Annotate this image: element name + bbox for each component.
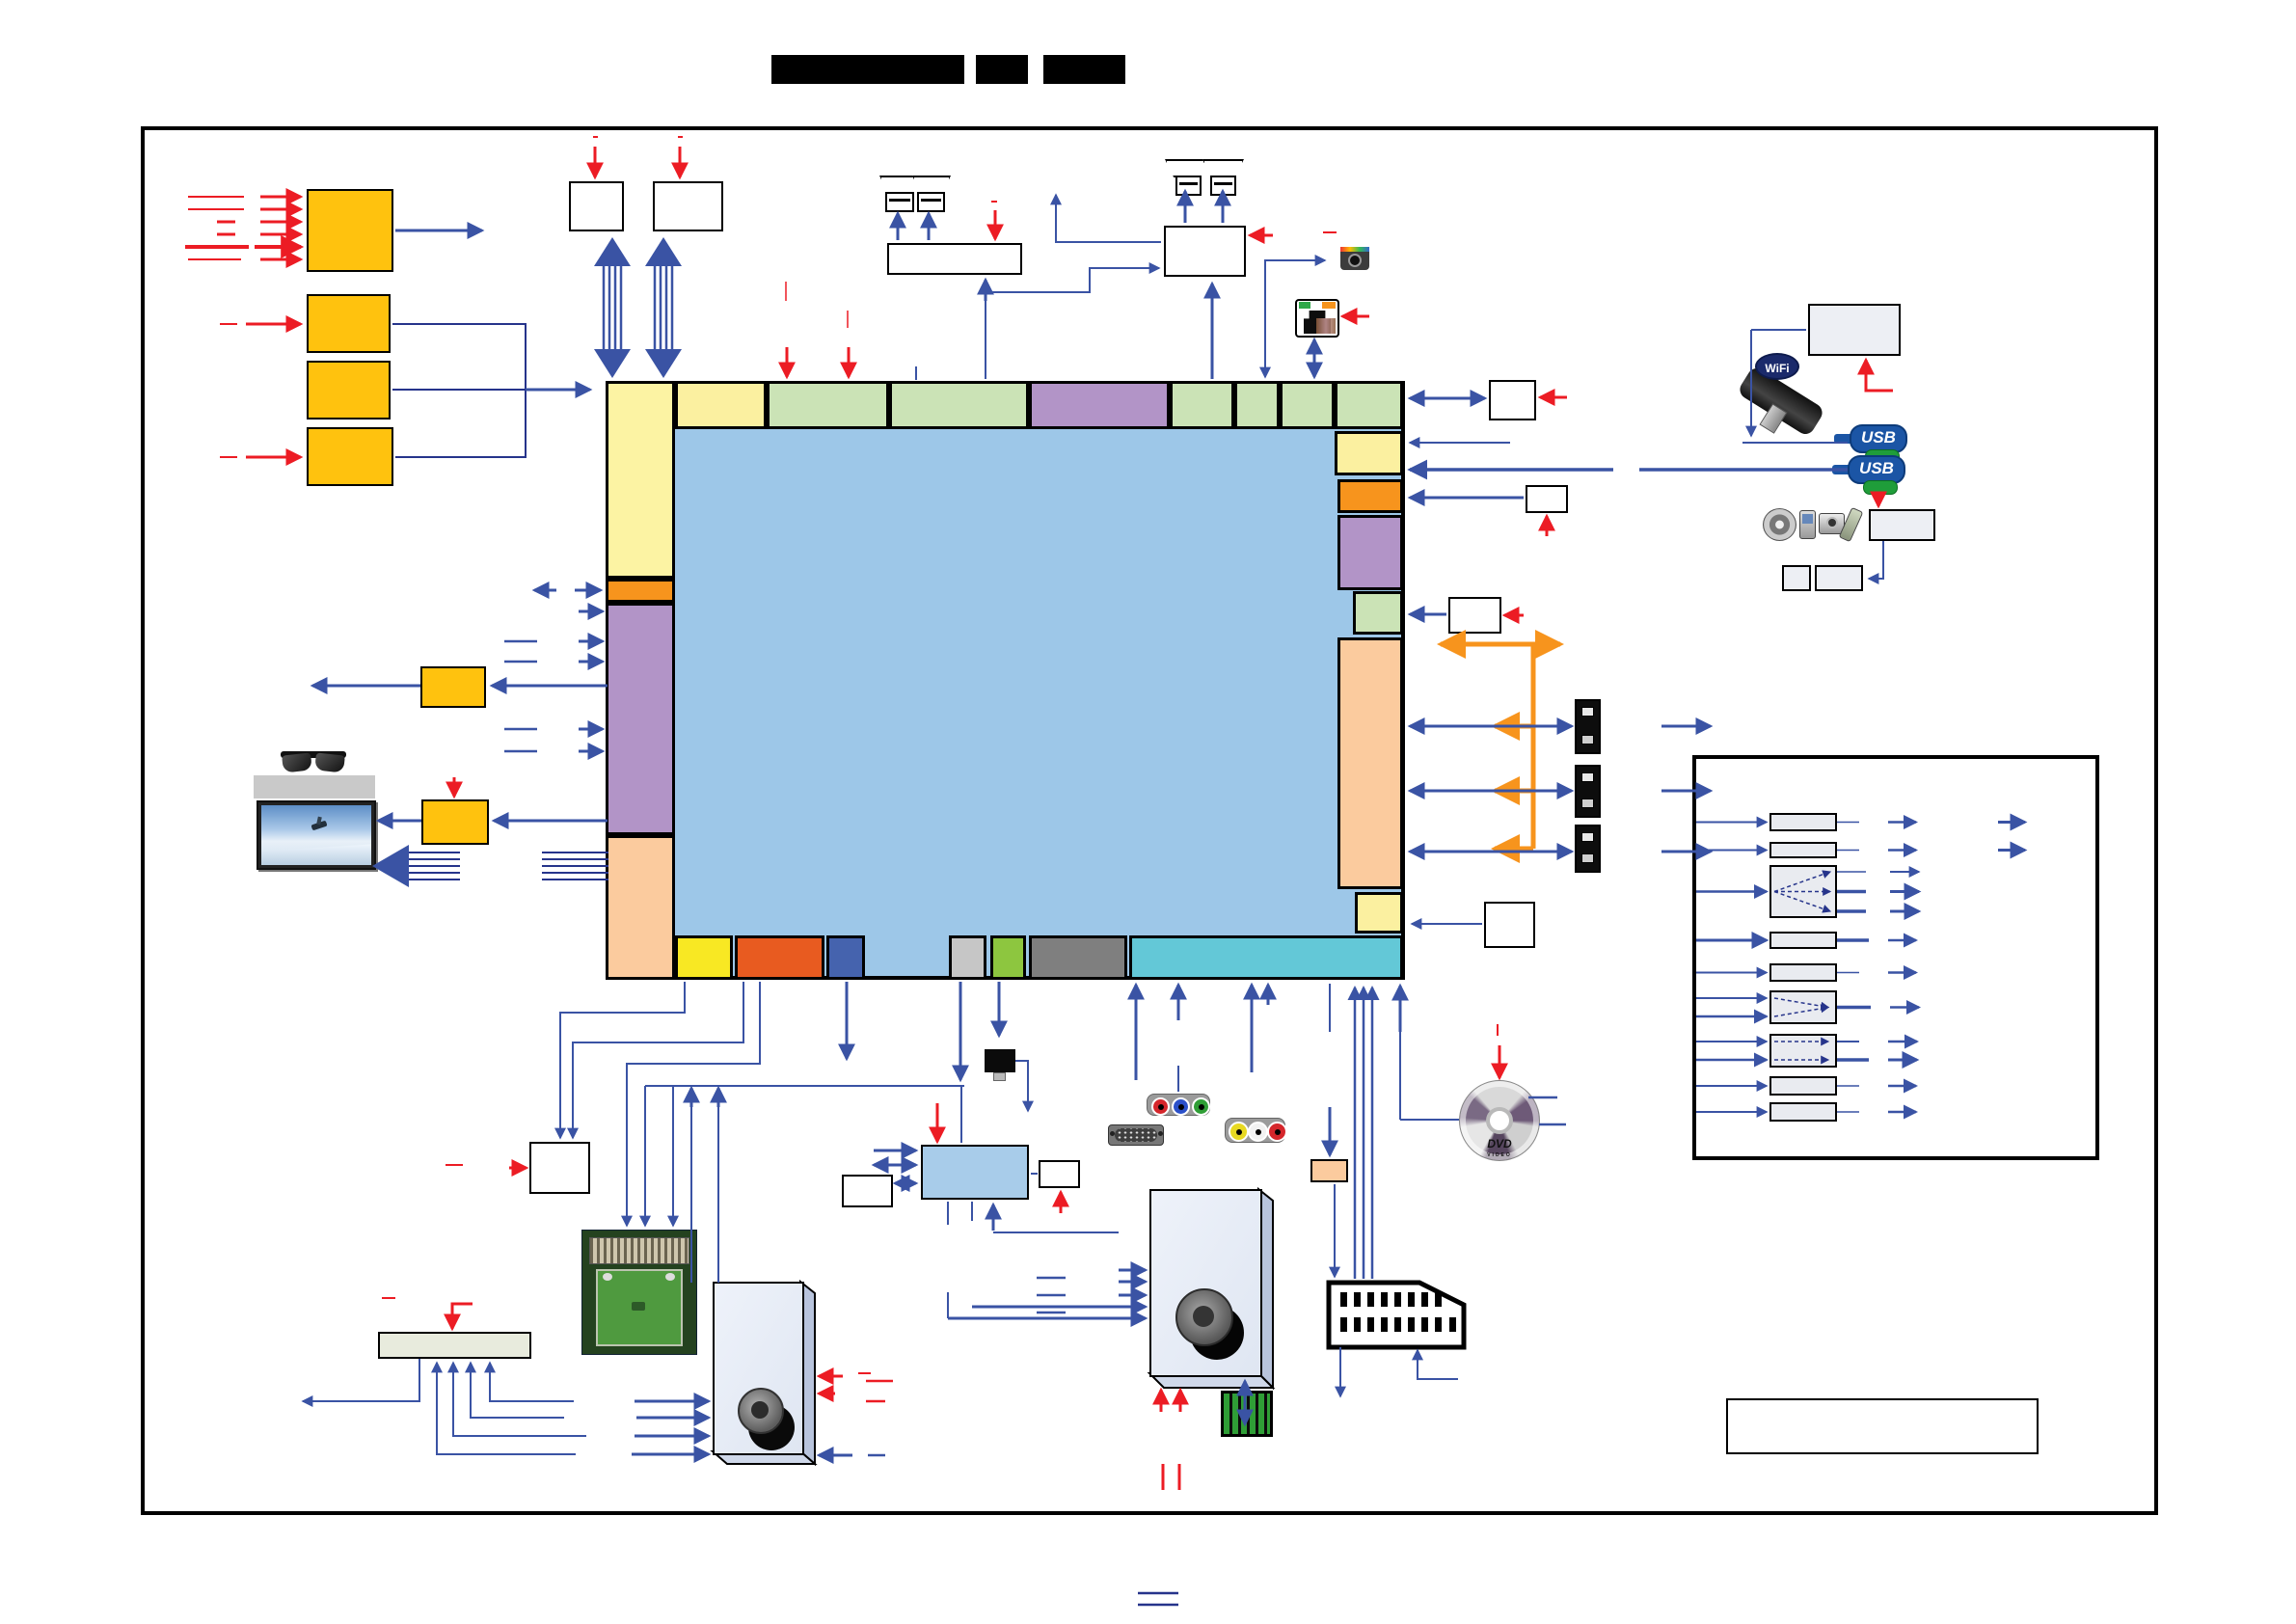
wire: [1866, 360, 1893, 391]
wire: [1056, 195, 1161, 242]
wire: [303, 1359, 419, 1401]
wire: [471, 1363, 564, 1418]
wire: [1869, 541, 1883, 579]
wire: [1774, 892, 1830, 912]
wire: [452, 1304, 473, 1329]
diagram-page: WiFi USB hi-speed USB hi-speed: [0, 0, 2296, 1624]
wiring-layer: [0, 0, 2296, 1624]
wire: [1774, 872, 1830, 892]
wire: [1774, 1008, 1828, 1017]
wire: [1265, 260, 1325, 376]
wire: [627, 982, 760, 1226]
wire: [437, 1363, 576, 1454]
wire: [453, 1363, 586, 1436]
wire: [560, 982, 685, 1138]
wire: [490, 1363, 574, 1401]
wire: [1774, 998, 1828, 1008]
wire: [1418, 1350, 1458, 1379]
wire: [986, 268, 1159, 292]
wire: [1015, 1061, 1028, 1111]
